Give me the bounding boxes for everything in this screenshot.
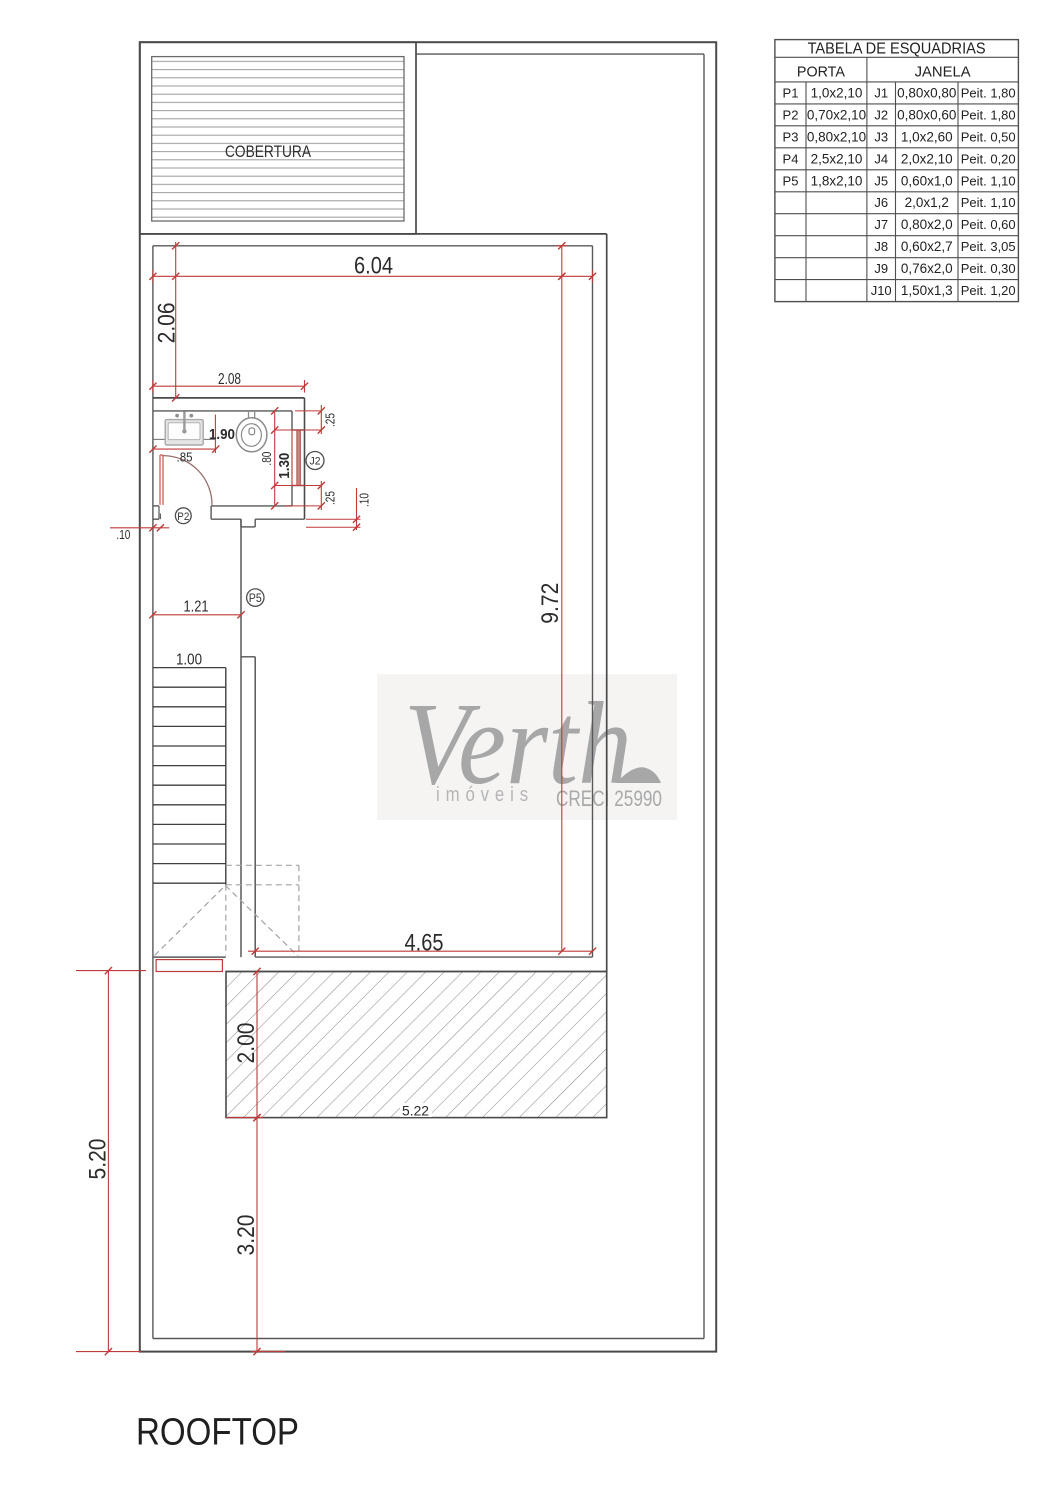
svg-text:0,60x2,7: 0,60x2,7	[901, 239, 953, 254]
svg-text:1.21: 1.21	[184, 599, 209, 616]
svg-text:.25: .25	[324, 413, 338, 427]
svg-text:P4: P4	[783, 151, 799, 166]
svg-text:ROOFTOP: ROOFTOP	[136, 1412, 299, 1454]
svg-text:.80: .80	[260, 452, 274, 466]
svg-text:0,60x1,0: 0,60x1,0	[901, 173, 953, 188]
svg-text:Peit. 0,50: Peit. 0,50	[961, 129, 1016, 144]
svg-text:P3: P3	[783, 129, 799, 144]
svg-text:0,80x0,80: 0,80x0,80	[897, 85, 956, 100]
svg-text:6.04: 6.04	[354, 253, 393, 280]
svg-text:J2: J2	[874, 107, 888, 122]
svg-text:TABELA DE ESQUADRIAS: TABELA DE ESQUADRIAS	[808, 41, 986, 58]
svg-text:P2: P2	[177, 511, 189, 523]
svg-text:Peit. 1,80: Peit. 1,80	[961, 107, 1016, 122]
svg-text:Peit. 0,20: Peit. 0,20	[961, 151, 1016, 166]
svg-text:J5: J5	[874, 173, 888, 188]
svg-text:Peit. 1,10: Peit. 1,10	[961, 173, 1016, 188]
svg-text:0,70x2,10: 0,70x2,10	[807, 107, 866, 122]
svg-text:J10: J10	[871, 283, 892, 298]
svg-text:1.30: 1.30	[276, 453, 293, 479]
svg-text:P1: P1	[783, 85, 799, 100]
svg-text:0,80x2,10: 0,80x2,10	[807, 129, 866, 144]
svg-text:9.72: 9.72	[537, 583, 564, 624]
svg-text:J8: J8	[874, 239, 888, 254]
svg-text:PORTA: PORTA	[797, 64, 845, 81]
svg-text:1.00: 1.00	[176, 652, 202, 669]
svg-text:0,80x2,0: 0,80x2,0	[901, 217, 953, 232]
svg-text:Peit. 0,60: Peit. 0,60	[961, 217, 1016, 232]
svg-text:5.22: 5.22	[402, 1102, 429, 1118]
svg-text:J9: J9	[874, 261, 888, 276]
svg-text:P2: P2	[783, 107, 799, 122]
svg-text:.85: .85	[177, 451, 193, 465]
svg-text:Peit. 1,20: Peit. 1,20	[961, 283, 1016, 298]
svg-text:P5: P5	[783, 173, 799, 188]
svg-text:2.00: 2.00	[233, 1023, 260, 1064]
svg-text:1,0x2,60: 1,0x2,60	[901, 129, 953, 144]
svg-text:imóveis: imóveis	[436, 784, 534, 806]
svg-text:1,50x1,3: 1,50x1,3	[901, 283, 953, 298]
svg-text:2,0x1,2: 2,0x1,2	[905, 195, 949, 210]
svg-text:COBERTURA: COBERTURA	[225, 143, 311, 161]
svg-text:3.20: 3.20	[233, 1215, 260, 1256]
svg-text:Peit. 0,30: Peit. 0,30	[961, 261, 1016, 276]
svg-text:J7: J7	[874, 217, 888, 232]
svg-text:0,76x2,0: 0,76x2,0	[901, 261, 953, 276]
svg-text:Peit. 1,10: Peit. 1,10	[961, 195, 1016, 210]
svg-text:2.08: 2.08	[218, 371, 241, 388]
svg-text:2.06: 2.06	[154, 302, 181, 343]
svg-text:J2: J2	[310, 456, 321, 468]
svg-text:J6: J6	[874, 195, 888, 210]
svg-text:2,0x2,10: 2,0x2,10	[901, 151, 953, 166]
svg-text:1,8x2,10: 1,8x2,10	[811, 173, 863, 188]
svg-text:1.90: 1.90	[209, 427, 235, 443]
svg-text:1,0x2,10: 1,0x2,10	[811, 85, 863, 100]
svg-text:.10: .10	[116, 528, 130, 542]
svg-text:J3: J3	[874, 129, 888, 144]
svg-text:J1: J1	[874, 85, 888, 100]
svg-text:Peit. 1,80: Peit. 1,80	[961, 85, 1016, 100]
svg-text:5.20: 5.20	[85, 1139, 112, 1180]
svg-text:CRECI 25990: CRECI 25990	[556, 786, 662, 811]
svg-text:P5: P5	[249, 593, 262, 605]
svg-text:Peit. 3,05: Peit. 3,05	[961, 239, 1016, 254]
svg-text:.25: .25	[324, 491, 338, 505]
svg-text:J4: J4	[874, 151, 888, 166]
svg-text:0,80x0,60: 0,80x0,60	[897, 107, 956, 122]
svg-text:.10: .10	[358, 493, 372, 507]
svg-text:JANELA: JANELA	[915, 64, 971, 81]
svg-text:4.65: 4.65	[405, 930, 444, 957]
svg-text:2,5x2,10: 2,5x2,10	[811, 151, 863, 166]
